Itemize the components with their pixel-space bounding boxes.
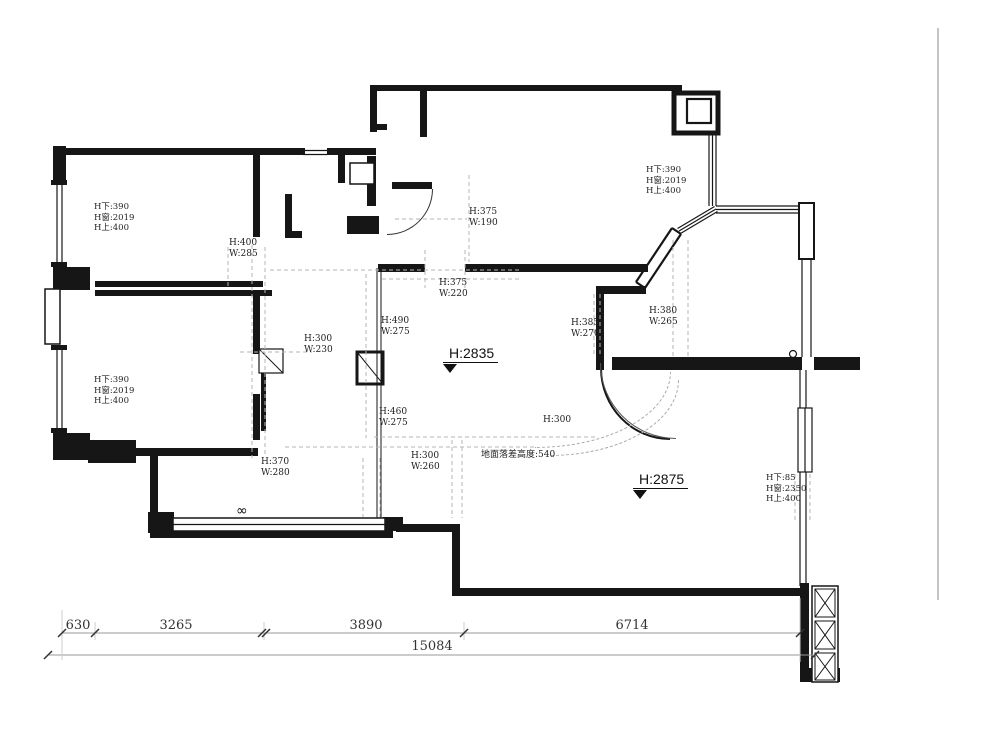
opening-h: H:400 [229,238,257,248]
spec-line: H下:390 [94,202,129,212]
opening-annotation: H:380W:265 [649,306,678,327]
opening-w: W:220 [439,289,468,299]
spec-line: H下:85 [766,473,796,483]
opening-w: W:230 [304,345,333,355]
floor-plan: H下:390H窗:2019H上:400 H下:390H窗:2019H上:400 … [0,0,1000,750]
ceiling-height-label: H:2835 [443,345,498,363]
ceiling-height-marker: H:2875 [633,471,688,499]
arch-opening-annotation: H:300 [543,415,571,426]
opening-annotation: H:375W:190 [469,207,498,228]
opening-annotation: H:385W:270 [571,318,600,339]
opening-annotation: H:400W:285 [229,238,258,259]
window-spec-annotation: H下:390H窗:2019H上:400 [646,165,686,197]
opening-w: W:280 [261,468,290,478]
opening-w: W:270 [571,329,600,339]
floor-level-note: 地面落差高度:540 [481,450,555,461]
floor-plan-linework [0,0,1000,750]
opening-w: W:190 [469,218,498,228]
opening-annotation: H:460W:275 [379,407,408,428]
opening-h: H:380 [649,306,677,316]
height-marker-triangle-icon [633,490,647,499]
window-spec-annotation: H下:85H窗:2350H上:400 [766,473,806,505]
opening-annotation: H:490W:275 [381,316,410,337]
opening-annotation: H:375W:220 [439,278,468,299]
opening-w: W:285 [229,249,258,259]
opening-w: W:275 [381,327,410,337]
chamfer-wall [636,228,681,288]
spec-line: H上:400 [94,396,129,406]
height-marker-triangle-icon [443,364,457,373]
spec-line: H窗:2019 [646,176,686,186]
dimension-label: 6714 [615,618,648,633]
dimension-label: 630 [66,618,91,633]
dimension-label: 3890 [349,618,382,633]
opening-h: H:300 [411,451,439,461]
window-spec-annotation: H下:390H窗:2019H上:400 [94,375,134,407]
opening-h: H:375 [439,278,467,288]
walls [51,85,860,682]
spec-line: H下:390 [94,375,129,385]
radiator-symbol: ∞ [236,503,248,519]
spec-line: H窗:2350 [766,484,806,494]
pipe-circle [790,351,797,358]
opening-h: H:460 [379,407,407,417]
opening-annotation: H:300W:260 [411,451,440,472]
opening-w: W:260 [411,462,440,472]
spec-line: H窗:2019 [94,386,134,396]
spec-line: H上:400 [766,494,801,504]
dimension-label: 3265 [159,618,192,633]
opening-h: H:385 [571,318,599,328]
spec-line: H窗:2019 [94,213,134,223]
opening-w: W:275 [379,418,408,428]
opening-w: W:265 [649,317,678,327]
ceiling-height-label: H:2875 [633,471,688,489]
dimension-total-label: 15084 [411,639,452,654]
opening-h: H:300 [304,334,332,344]
spec-line: H上:400 [646,186,681,196]
spec-line: H上:400 [94,223,129,233]
opening-h: H:375 [469,207,497,217]
opening-h: H:490 [381,316,409,326]
window-spec-annotation: H下:390H窗:2019H上:400 [94,202,134,234]
opening-annotation: H:300W:230 [304,334,333,355]
ceiling-height-marker: H:2835 [443,345,498,373]
opening-h: H:370 [261,457,289,467]
spec-line: H下:390 [646,165,681,175]
opening-annotation: H:370W:280 [261,457,290,478]
